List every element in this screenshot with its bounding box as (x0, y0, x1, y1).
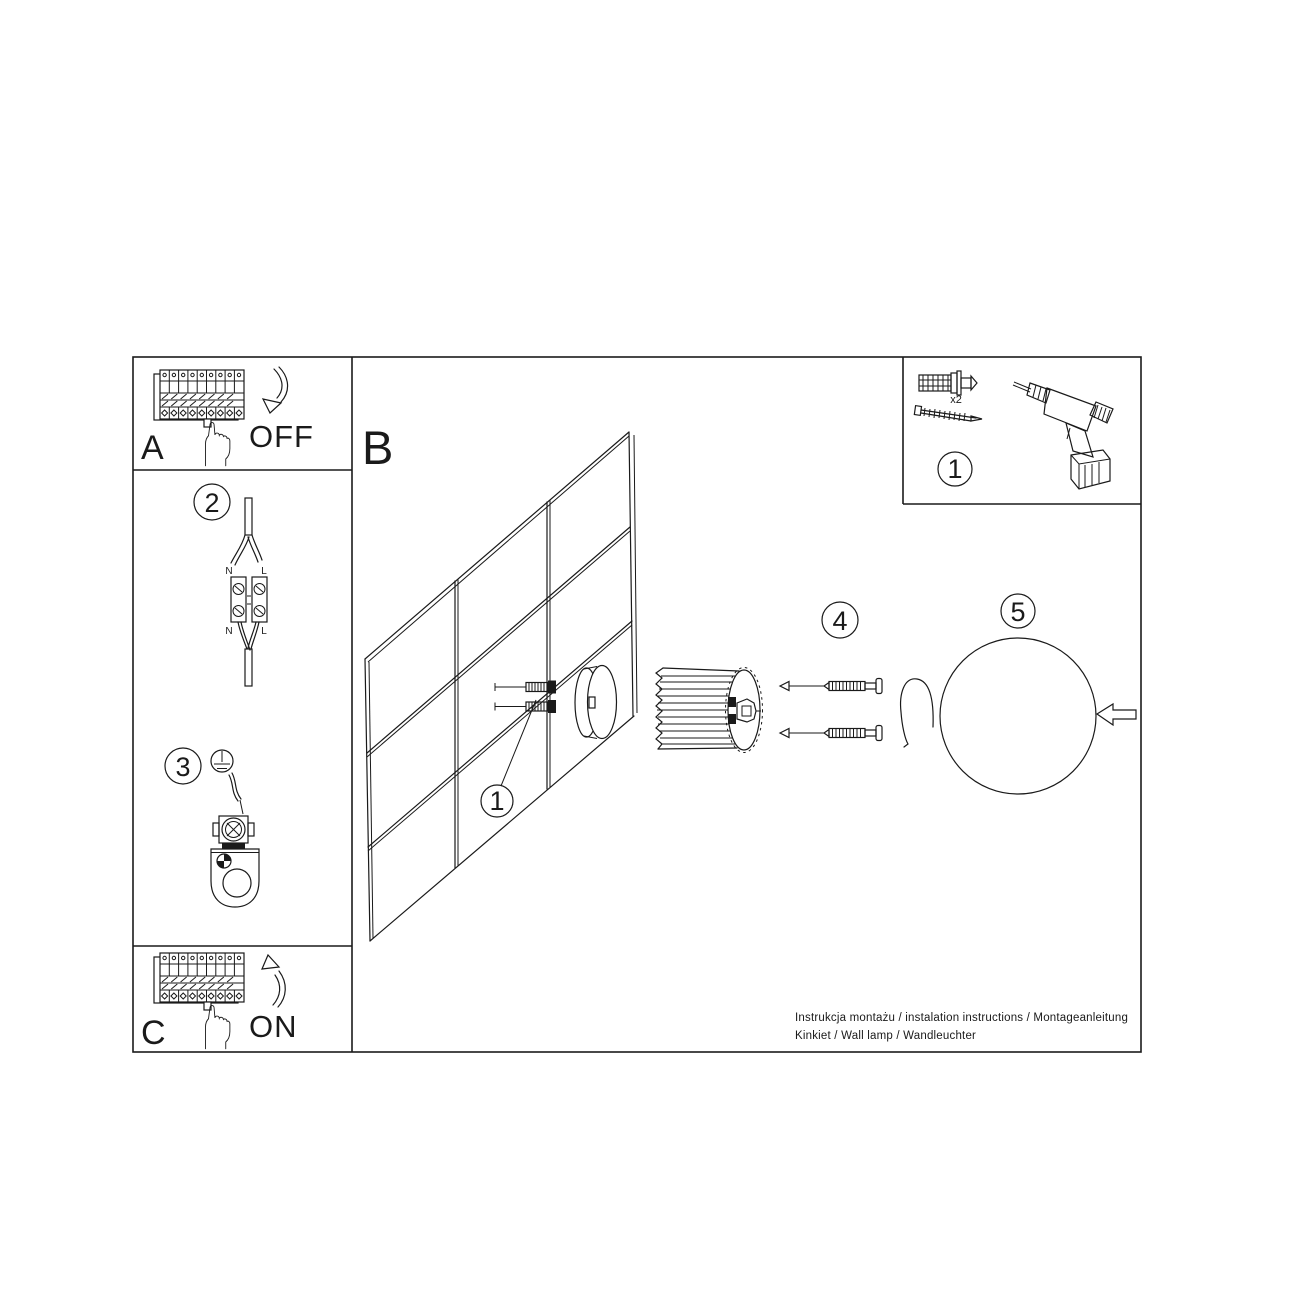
mounting-bracket-icon (211, 849, 259, 907)
tools-box: x2 1 (914, 371, 1113, 489)
instruction-sheet: A OFF 2 N L N L 3 (0, 0, 1300, 1300)
step-2-number: 2 (204, 488, 219, 518)
step-4-screws: 4 (780, 602, 882, 741)
label-n-bottom: N (225, 626, 232, 637)
panel-power-on: C ON (141, 953, 298, 1052)
screw-icon (780, 679, 882, 694)
off-label: OFF (249, 419, 314, 454)
main-diagram: B 1 (362, 421, 1136, 941)
step-3-ground: 3 (165, 748, 259, 907)
label-n-top: N (225, 566, 232, 577)
wall-ring-icon (575, 666, 617, 739)
footer-line-2: Kinkiet / Wall lamp / Wandleuchter (795, 1030, 976, 1042)
step-3-number: 3 (175, 752, 190, 782)
step-4-number: 4 (832, 606, 847, 636)
earth-symbol-icon (211, 750, 233, 772)
lamp-body-icon (656, 668, 763, 753)
footer: Instrukcja montażu / instalation instruc… (795, 1012, 1128, 1042)
footer-line-1: Instrukcja montażu / instalation instruc… (795, 1012, 1128, 1024)
ground-terminal-icon (213, 816, 254, 849)
long-screw-icon (914, 406, 982, 421)
step-1-leader (501, 700, 536, 786)
section-c-label: C (141, 1014, 166, 1052)
breaker-panel-icon (154, 953, 244, 1010)
socket-icon (737, 699, 756, 722)
wire-l-top (252, 535, 262, 560)
on-label: ON (249, 1009, 298, 1044)
globe-icon (940, 638, 1096, 794)
step-5-number: 5 (1010, 597, 1025, 627)
screw-icon (780, 726, 882, 741)
push-arrow-icon (1097, 704, 1136, 725)
instruction-drawing: A OFF 2 N L N L 3 (0, 0, 1300, 1300)
anchor-qty-label: x2 (950, 394, 962, 406)
hand-icon (206, 1006, 230, 1049)
section-a-label: A (141, 429, 164, 467)
drill-icon (1013, 382, 1113, 489)
cable-top (245, 498, 252, 535)
globe-neck-icon (901, 679, 934, 747)
cable-bottom (245, 649, 252, 686)
breaker-panel-icon (154, 370, 244, 427)
step-1-wall-number: 1 (489, 786, 504, 816)
ground-wire (232, 773, 241, 799)
panel-power-off: A OFF (141, 367, 314, 467)
anchor-icon (919, 371, 977, 395)
arrow-down-icon (263, 367, 288, 413)
label-l-top: L (261, 566, 267, 577)
section-b-label: B (362, 421, 393, 474)
tools-step-number: 1 (947, 454, 962, 484)
step-5-globe: 5 (901, 594, 1136, 794)
hand-icon (206, 423, 230, 466)
arrow-up-icon (262, 955, 285, 1007)
step-2-wiring: 2 N L N L (194, 484, 267, 686)
terminal-block-icon (231, 577, 267, 622)
label-l-bottom: L (261, 626, 267, 637)
